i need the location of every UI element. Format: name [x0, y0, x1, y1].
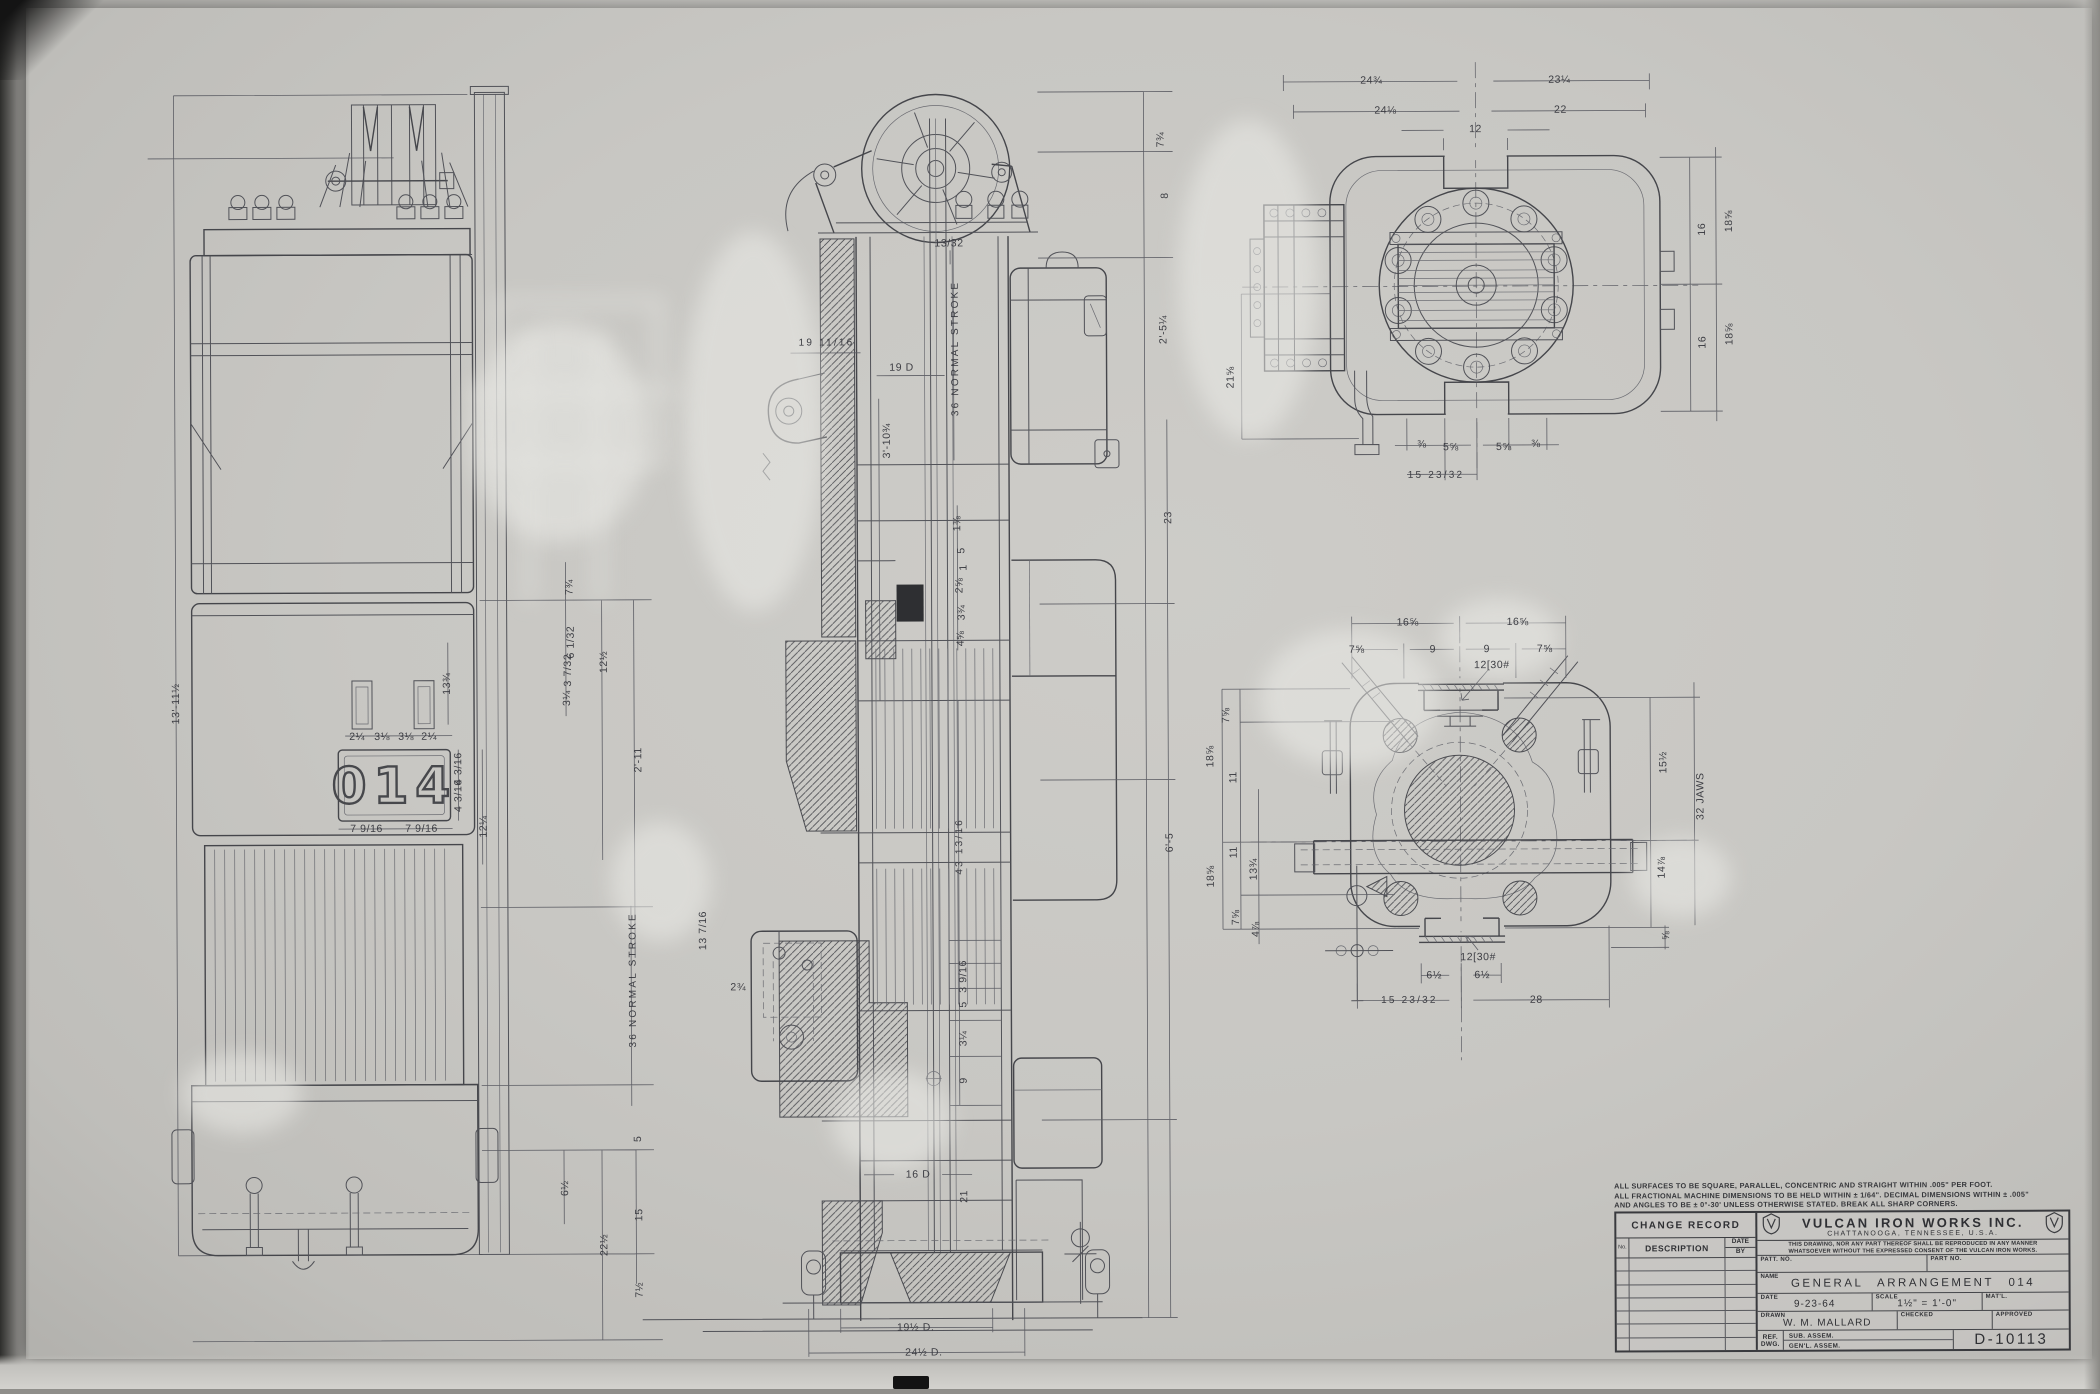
col-by: BY	[1725, 1248, 1755, 1257]
col-no: No.	[1616, 1238, 1629, 1257]
change-record-table: CHANGE RECORD No. DESCRIPTION DATE BY	[1616, 1213, 1758, 1351]
change-record-rows	[1616, 1258, 1755, 1351]
photo-edge-right	[2084, 0, 2100, 1389]
drawing-number: D-10113	[1954, 1330, 2069, 1350]
sheet-content: 13'-11½7¾6 1/323 7/323¼12½2'-1113¾2¼3⅛3⅛…	[0, 0, 2100, 1394]
photo-artifact	[893, 1376, 929, 1389]
ram-striations	[876, 648, 994, 829]
checked-label: CHECKED	[1901, 1313, 1934, 1319]
vulcan-logo-right	[2040, 1212, 2068, 1239]
photo-edge-bottom	[0, 1355, 2100, 1389]
company-name: VULCAN IRON WORKS INC.	[1785, 1214, 2040, 1230]
genl-assem-row: GEN'L. ASSEM.	[1784, 1340, 1953, 1350]
reproduction-disclaimer: THIS DRAWING, NOR ANY PART THEREOF SHALL…	[1757, 1240, 2068, 1256]
name-label: NAME	[1761, 1274, 1779, 1280]
photo-backdrop: 13'-11½7¾6 1/323 7/323¼12½2'-1113¾2¼3⅛3⅛…	[0, 0, 2100, 1389]
vulcan-logo-left	[1757, 1213, 1785, 1240]
matl-label: MAT'L.	[1986, 1294, 2008, 1300]
date-value: 9-23-64	[1758, 1299, 1872, 1310]
company-location: CHATTANOOGA, TENNESSEE, U.S.A.	[1785, 1229, 2040, 1237]
change-record-title: CHANGE RECORD	[1616, 1213, 1755, 1239]
title-block: CHANGE RECORD No. DESCRIPTION DATE BY	[1614, 1210, 2071, 1353]
col-date: DATE	[1725, 1238, 1755, 1248]
patt-no-label: PATT. NO.	[1760, 1257, 1792, 1263]
ref-dwg-label: REF. DWG.	[1758, 1331, 1784, 1350]
drawn-value: W. M. MALLARD	[1758, 1317, 1897, 1329]
note-line: AND ANGLES TO BE ± 0°-30' UNLESS OTHERWI…	[1614, 1199, 2070, 1210]
cylinder-striations	[215, 849, 446, 1082]
approved-label: APPROVED	[1996, 1312, 2033, 1318]
whiteout-ghosts	[178, 117, 1733, 1174]
model-nameplate: 014	[338, 750, 450, 821]
general-notes: ALL SURFACES TO BE SQUARE, PARALLEL, CON…	[1614, 1180, 2070, 1210]
photo-edge-left	[0, 0, 30, 1389]
column-striations	[877, 868, 995, 1005]
drawing-name: GENERAL ARRANGEMENT 014	[1758, 1274, 2069, 1290]
front-elevation-view	[147, 86, 662, 1342]
part-no-label: PART NO.	[1930, 1256, 1961, 1262]
photo-corner-shadow	[0, 0, 110, 80]
scale-value: 1½" = 1'-0"	[1873, 1298, 1982, 1309]
col-description: DESCRIPTION	[1629, 1238, 1725, 1257]
